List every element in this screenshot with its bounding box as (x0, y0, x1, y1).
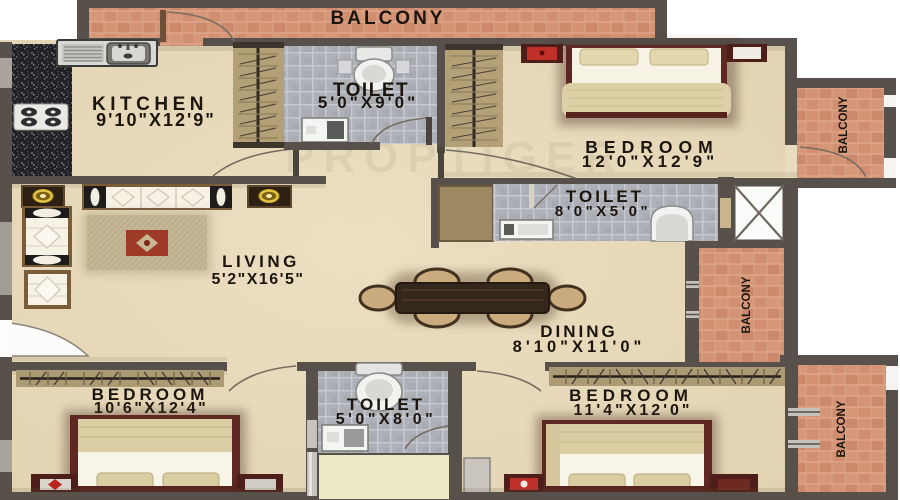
svg-text:8'10"X11'0": 8'10"X11'0" (513, 338, 646, 356)
svg-text:5'2"X16'5": 5'2"X16'5" (212, 271, 305, 288)
svg-text:8'0"X5'0": 8'0"X5'0" (555, 203, 651, 220)
svg-text:5'0"X9'0": 5'0"X9'0" (318, 93, 418, 112)
svg-text:12'0"X12'9": 12'0"X12'9" (582, 152, 718, 171)
svg-text:BALCONY: BALCONY (331, 8, 446, 29)
svg-text:BALCONY: BALCONY (838, 96, 850, 153)
svg-text:BALCONY: BALCONY (836, 400, 848, 457)
svg-text:BALCONY: BALCONY (741, 276, 753, 333)
svg-text:LIVING: LIVING (222, 252, 300, 271)
svg-text:9'10"X12'9": 9'10"X12'9" (96, 110, 216, 130)
